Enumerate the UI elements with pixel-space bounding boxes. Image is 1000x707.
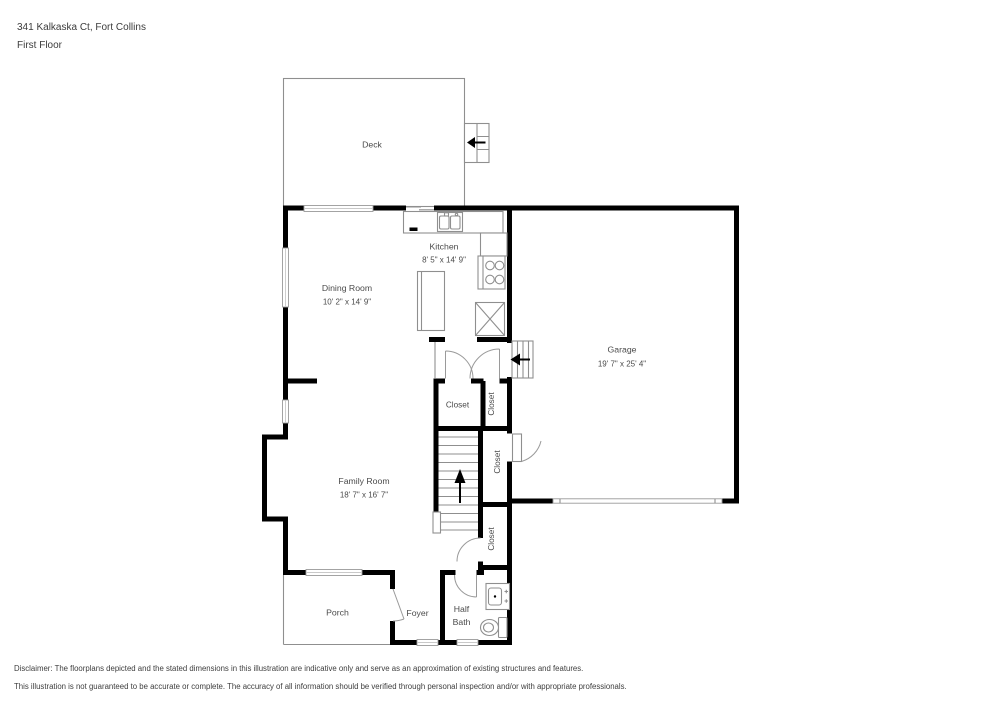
half-bath-label-line2: Bath	[453, 617, 471, 627]
closet-door-icon	[446, 351, 474, 379]
window-icon	[283, 248, 289, 307]
closet-label: Closet	[446, 401, 470, 410]
deck-outline	[284, 79, 490, 207]
garage-dims: 19' 7" x 25' 4"	[598, 360, 646, 369]
island-counter	[418, 272, 445, 331]
garage-label: Garage	[608, 345, 637, 355]
garage-door-icon	[553, 499, 722, 503]
sliding-door-icon	[406, 207, 434, 210]
garage-closet-door-icon	[513, 434, 542, 462]
refrigerator-icon	[476, 303, 505, 336]
floorplan-canvas: 341 Kalkaska Ct, Fort Collins First Floo…	[0, 0, 1000, 707]
vanity-sink-icon	[486, 584, 510, 610]
window-icon	[304, 206, 373, 212]
foyer-label: Foyer	[406, 608, 428, 618]
stairs-icon	[433, 437, 478, 533]
window-icon	[457, 640, 478, 646]
floorplan-svg: Deck Kitchen 8' 5" x 14' 9" Dining Room …	[0, 0, 1000, 707]
kitchen-sink-icon	[438, 213, 463, 232]
kitchen-label: Kitchen	[430, 242, 459, 252]
toilet-icon	[481, 618, 508, 638]
porch-label: Porch	[326, 608, 349, 618]
kitchen-fixtures	[404, 212, 508, 336]
stove-icon	[478, 256, 505, 289]
doors	[393, 349, 541, 621]
deck-label: Deck	[362, 140, 382, 150]
dining-room-dims: 10' 2" x 14' 9"	[323, 298, 371, 307]
kitchen-dims: 8' 5" x 14' 9"	[422, 256, 466, 265]
deck-steps-icon	[465, 124, 490, 163]
disclaimer-line2: This illustration is not guaranteed to b…	[14, 678, 994, 696]
closet-door-icon	[457, 538, 481, 562]
closet-label: Closet	[487, 392, 496, 416]
window-icon	[283, 400, 289, 423]
window-icon	[306, 570, 362, 576]
window-icon	[417, 640, 438, 646]
closet-label: Closet	[487, 527, 496, 551]
family-room-dims: 18' 7" x 16' 7"	[340, 491, 388, 500]
family-room-label: Family Room	[338, 476, 389, 486]
closet-door-icon	[470, 349, 500, 379]
plan-disclaimer: Disclaimer: The floorplans depicted and …	[14, 660, 994, 696]
front-door-icon	[393, 589, 404, 621]
stairs-up-arrow-icon	[455, 469, 466, 503]
garage-entry-steps-icon	[511, 341, 534, 378]
bathroom-fixtures	[481, 584, 510, 638]
dining-room-label: Dining Room	[322, 283, 372, 293]
half-bath-label-line1: Half	[454, 604, 470, 614]
closet-label: Closet	[493, 450, 502, 474]
disclaimer-line1: Disclaimer: The floorplans depicted and …	[14, 660, 994, 678]
half-bath-door-icon	[455, 575, 477, 597]
